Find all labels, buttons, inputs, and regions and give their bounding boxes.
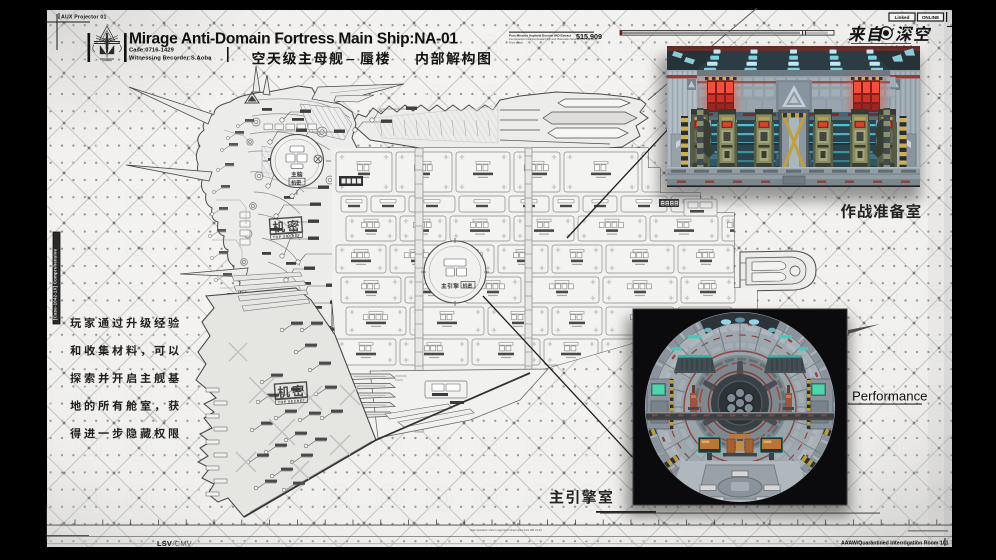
svg-text:Mirage Anti-Domain Fortress Ma: Mirage Anti-Domain Fortress Main Ship:NA… [129,31,458,48]
svg-text:[Case-1042-1X] Comprehensive: [Case-1042-1X] Comprehensive [52,248,57,320]
svg-text:Prime Insight: Prime Insight [509,41,523,44]
svg-text:ONLINE: ONLINE [922,15,939,20]
svg-text:F - O - S -: F - O - S - [896,45,916,49]
svg-text:Witnessing Recorder:S.Aoba: Witnessing Recorder:S.Aoba [129,56,212,62]
svg-text:Gate Operation Clinic Image Ea: Gate Operation Clinic Image East Observa… [470,528,542,532]
svg-text:Linked: Linked [895,15,910,20]
svg-text:Performance: Performance [852,389,928,404]
svg-text:/CMV: /CMV [173,539,192,548]
svg-text:Case:0716-1429: Case:0716-1429 [129,48,175,54]
svg-text:AUX Projector 01: AUX Projector 01 [61,15,107,21]
svg-text:515,909: 515,909 [576,32,602,41]
svg-text:AAAW/Quarantined Interrogation: AAAW/Quarantined Interrogation Room 101 [841,540,949,546]
svg-text:LSV: LSV [157,539,172,548]
svg-text:Post Mission Asphodi Dossier I: Post Mission Asphodi Dossier IKD Extract [509,34,571,38]
